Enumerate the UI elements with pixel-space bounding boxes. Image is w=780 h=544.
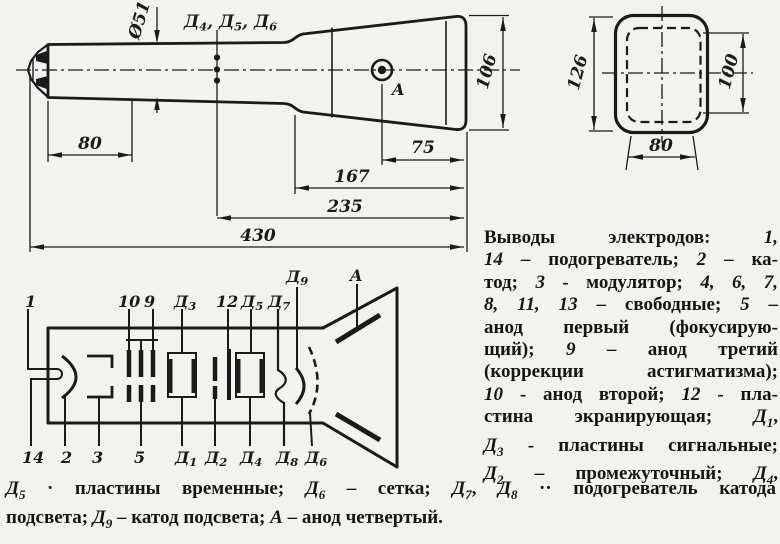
caption-line: 8, 11, 13 – свободные; 5 –: [484, 294, 778, 316]
caption-text-run: – катод подсвета;: [112, 507, 270, 528]
anode-a-label: A: [390, 80, 404, 99]
cathode-2: [62, 356, 76, 446]
pin-label-d9: Д9: [285, 267, 308, 288]
caption-text-run: (коррекции астигматизма);: [484, 361, 778, 382]
caption-line: (коррекции астигматизма);: [484, 361, 778, 383]
dimension-arrow: [296, 185, 309, 191]
dimension-arrow: [450, 185, 463, 191]
pin-label-d2: Д2: [204, 448, 227, 469]
pin-label-d7: Д7: [267, 292, 290, 313]
dim-80-screen-value: 80: [648, 136, 673, 156]
tube-base-cap: [28, 45, 48, 98]
caption-text-run: – подогреватель;: [503, 249, 697, 270]
dim-235: 235: [217, 197, 464, 218]
anode-grids-5-10-9: [126, 309, 158, 446]
pin-label-5: 5: [134, 448, 145, 467]
dimension-arrow: [450, 215, 463, 221]
signal-plates-d3-d1: [168, 309, 196, 446]
caption-text-run: ,: [472, 478, 498, 499]
caption-text-run: Д: [484, 435, 497, 456]
caption-line: Д3 - пластины сигнальные;: [484, 435, 778, 463]
caption-text-run: 8, 11, 13: [484, 294, 578, 315]
dim-126: 126: [564, 17, 613, 131]
screening-plate-12: [228, 309, 229, 400]
caption-text-run: щий);: [484, 339, 566, 360]
caption-text-run: - пла-: [701, 384, 779, 405]
pin-label-a: A: [348, 266, 362, 285]
pin-label-3: 3: [92, 448, 103, 467]
caption-text-run: 12: [682, 384, 701, 405]
dimension-arrow: [31, 244, 44, 250]
dim-235-value: 235: [326, 197, 363, 217]
caption-line: стина экранирующая; Д1,: [484, 406, 778, 434]
caption-line: Выводы электродов: 1,: [484, 227, 778, 249]
caption-text-run: –: [750, 294, 778, 315]
dim-106: 106: [469, 16, 509, 131]
caption-text-run: 5: [740, 294, 750, 315]
caption-line: анод первый (фокусирую-: [484, 317, 778, 339]
dim-80-screen: 80: [626, 136, 698, 170]
plates-d456-label: Д4, Д5, Д6: [183, 12, 277, 34]
caption-text-run: - анод второй;: [503, 384, 682, 405]
caption-right-column: Выводы электродов: 1,14 – подогреватель;…: [484, 227, 778, 491]
caption-text-run: – анод третий: [576, 339, 779, 360]
caption-line: 10 - анод второй; 12 - пла-: [484, 384, 778, 406]
pin-label-1: 1: [25, 292, 36, 311]
pin-label-d1: Д1: [174, 448, 197, 469]
caption-text-run: 1,: [764, 227, 778, 248]
dimension-arrow: [591, 116, 597, 129]
tube-side-view-drawing: A Д4, Д5, Д6 Ø51 80 75 167 235: [0, 0, 530, 260]
pin-label-14: 14: [22, 448, 44, 467]
grid-d6: [309, 347, 318, 446]
caption-text-run: – анод четвертый.: [283, 507, 443, 528]
caption-text-run: подсвета;: [6, 507, 93, 528]
caption-text-run: Д: [754, 406, 767, 427]
dimension-arrow: [740, 98, 746, 111]
caption-text-run: – ка-: [706, 249, 778, 270]
dim-167-value: 167: [334, 167, 370, 187]
caption-text-run: 4, 6, 7,: [700, 272, 778, 293]
dimension-arrow: [591, 19, 597, 32]
pin-label-d5: Д5: [240, 292, 263, 313]
pin-label-2: 2: [60, 448, 72, 467]
dimension-arrow: [118, 152, 131, 158]
caption-text-run: анод первый (фокусирую-: [484, 317, 778, 338]
caption-text-run: ·· подогреватель катода: [518, 478, 777, 499]
dim-430-value: 430: [240, 226, 276, 246]
dimension-arrow: [680, 154, 693, 160]
caption-text-run: Д: [93, 507, 106, 528]
caption-text-run: стина экранирующая;: [484, 406, 754, 427]
caption-text-run: Д: [452, 478, 465, 499]
caption-text-run: 10: [484, 384, 503, 405]
dimension-arrow: [740, 35, 746, 48]
dimension-arrow: [500, 18, 506, 31]
caption-bottom-block: Д5 · пластины временные; Д6 – сетка; Д7,…: [6, 478, 776, 535]
caption-text-run: 3: [535, 272, 545, 293]
dim-126-value: 126: [564, 53, 593, 93]
tube-outline: [48, 16, 466, 129]
illumination-heater-d7-d8: [276, 309, 286, 446]
modulator-3: [87, 356, 112, 446]
caption-text-run: – сетка;: [325, 478, 452, 499]
dimension-arrow: [383, 157, 396, 163]
pin-label-d6: Д6: [304, 448, 327, 469]
electrode-schematic-drawing: 1 10 9 Д3 12 Д5 Д7 Д9 A 14 2 3 5 Д1 Д2 Д…: [0, 260, 480, 480]
caption-text-run: Выводы электродов:: [484, 227, 764, 248]
dim-106-value: 106: [473, 52, 502, 92]
pin-label-d4: Д4: [239, 448, 262, 469]
caption-text-run: тод;: [484, 272, 535, 293]
caption-line: щий); 9 – анод третий: [484, 339, 778, 361]
pin-label-d3: Д3: [173, 292, 196, 313]
caption-text-run: – свободные;: [578, 294, 740, 315]
dimension-arrow: [500, 114, 506, 127]
caption-text-run: Д: [498, 478, 511, 499]
caption-text-run: · пластины временные;: [25, 478, 305, 499]
dim-100-value: 100: [715, 52, 744, 92]
pin-label-d8: Д8: [275, 448, 298, 469]
caption-line: тод; 3 - модулятор; 4, 6, 7,: [484, 272, 778, 294]
pin-label-12: 12: [216, 292, 238, 311]
caption-text-run: А: [270, 507, 283, 528]
caption-text-run: - пластины сигнальные;: [503, 435, 778, 456]
caption-text-run: 2: [697, 249, 707, 270]
dim-diameter-51: Ø51: [124, 0, 157, 113]
dimension-arrow: [154, 30, 160, 43]
caption-line: 14 – подогреватель; 2 – ка-: [484, 249, 778, 271]
dimension-arrow: [450, 244, 463, 250]
envelope-outline: [48, 288, 397, 467]
dimension-arrow: [450, 157, 463, 163]
caption-line: Д5 · пластины временные; Д6 – сетка; Д7,…: [6, 478, 776, 507]
dimension-arrow: [630, 154, 643, 160]
caption-text-run: Д: [6, 478, 19, 499]
caption-text-run: ,: [773, 406, 778, 427]
illumination-cathode-d9: [296, 287, 304, 404]
screen-front-view-drawing: 126 100 80: [530, 0, 780, 212]
caption-text-run: Д: [306, 478, 319, 499]
dimension-arrow: [218, 215, 231, 221]
dim-51-value: Ø51: [124, 0, 155, 42]
dim-75-value: 75: [411, 138, 435, 158]
dim-80-value: 80: [77, 134, 102, 154]
caption-text-run: 9: [566, 339, 576, 360]
caption-line: подсвета; Д9 – катод подсвета; А – анод …: [6, 507, 776, 536]
heater-1-14: [28, 309, 62, 446]
pin-label-10: 10: [118, 292, 140, 311]
scanned-figure-page: A Д4, Д5, Д6 Ø51 80 75 167 235: [0, 0, 780, 544]
caption-text-run: 14: [484, 249, 503, 270]
anode-button: A: [372, 60, 404, 99]
caption-text-run: - модулятор;: [545, 272, 700, 293]
pin-label-9: 9: [144, 292, 155, 311]
dimension-arrow: [49, 152, 62, 158]
time-plates-d5-d4: [236, 309, 264, 446]
